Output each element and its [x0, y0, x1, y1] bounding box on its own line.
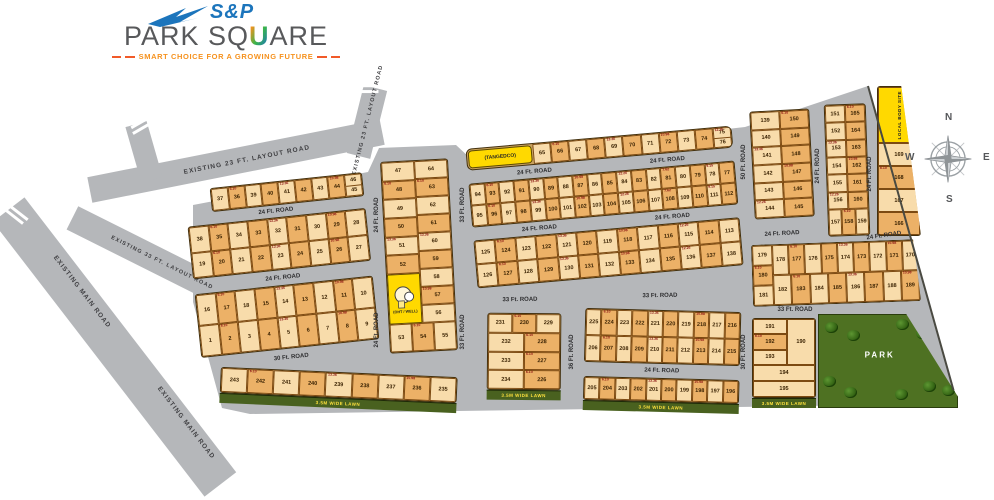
- plot-46-45: 4645: [344, 173, 363, 197]
- plot-33: 33: [247, 219, 269, 246]
- plot-49: 49: [383, 198, 417, 218]
- tagline-dash-icon: [125, 56, 134, 58]
- plot-204: 2046.10: [599, 377, 615, 399]
- plot-227: 2276.10: [524, 352, 560, 371]
- plot-150: 1506.10: [779, 110, 809, 129]
- plot-196: 196: [723, 381, 739, 403]
- plot-184: 184: [810, 273, 829, 304]
- plot-203: 203: [615, 378, 631, 400]
- plot-21: 21: [230, 247, 252, 274]
- layout-map: EXISTING 23 FT. LAYOUT ROAD EXISTING 23 …: [0, 0, 994, 500]
- plot-158: 1586.10: [842, 209, 856, 235]
- plot-153: 15313.36: [826, 140, 847, 158]
- plot-231: 231: [488, 314, 512, 333]
- plot-57: 5710.98: [421, 285, 455, 305]
- plot-237: 237: [377, 375, 404, 400]
- plot-28: 28: [345, 209, 367, 236]
- plot-69: 6913.36: [604, 136, 624, 158]
- plot-160: 160: [848, 191, 869, 209]
- plot-186: 18613.36: [846, 272, 865, 303]
- logo-sp-text: S&P: [210, 2, 340, 22]
- plot-75-76: 757612.26: [712, 127, 732, 149]
- plot-48: 486.10: [382, 180, 416, 200]
- lawn-strip: 3.5M WIDE LAWN: [487, 390, 561, 401]
- plot-10: 10: [352, 277, 375, 310]
- plot-55: 55: [433, 321, 456, 350]
- plot-59: 59: [419, 249, 453, 269]
- plot-121: 12113.36: [556, 233, 578, 258]
- road-label-24ft: 24 Ft. ROAD: [522, 224, 557, 233]
- plot-140: 140: [751, 129, 781, 148]
- lawn-strip: 3.5M WIDE LAWN: [752, 398, 816, 408]
- block-h: 1911926.10193 190 194 195 3.5M WIDE LAWN: [752, 318, 816, 408]
- road-label-33ft: 33 Ft. ROAD: [777, 307, 812, 313]
- plot-156: 15612.26: [828, 192, 849, 210]
- plot-151: 151: [825, 105, 846, 123]
- plot-122: 122: [535, 234, 557, 259]
- plot-243: 243: [221, 368, 248, 393]
- plot-152: 152: [825, 122, 846, 140]
- plot-77: 77: [719, 162, 735, 184]
- plot-216: 216: [724, 313, 740, 339]
- plot-118: 11810.98: [617, 227, 639, 252]
- plot-113: 113: [718, 218, 740, 243]
- compass-east: E: [983, 152, 990, 163]
- plot-72: 7210.98: [658, 131, 678, 153]
- tree-icon: [923, 381, 936, 392]
- plot-116: 116: [657, 224, 679, 249]
- plot-211: 211: [662, 337, 678, 363]
- plot-132: 132: [598, 252, 620, 277]
- plot-159: 159: [855, 208, 869, 234]
- plot-137: 137: [700, 243, 722, 268]
- plot-58: 58: [420, 267, 454, 287]
- plot-225: 225: [586, 309, 602, 335]
- plot-20: 206.10: [211, 249, 233, 276]
- plot-240: 240: [299, 371, 326, 396]
- plot-164: 164: [845, 122, 866, 140]
- road-label-24ft: 24 Ft. ROAD: [655, 212, 690, 221]
- tree-icon: [825, 322, 838, 333]
- plot-202: 202: [630, 378, 646, 400]
- plot-65: 65: [532, 142, 552, 164]
- plot-135: 135: [659, 247, 681, 272]
- plot-56: 56: [422, 303, 456, 323]
- compass-south: S: [946, 194, 953, 205]
- road-label-30ft: 30 Ft. ROAD: [274, 353, 309, 363]
- plot-27: 27: [348, 234, 370, 261]
- plot-209: 209: [631, 336, 647, 362]
- block-c-bottom-big: 2252246.1022322222113.3622021921810.9821…: [583, 308, 742, 414]
- park-label: PARK: [865, 351, 895, 360]
- plot-32: 3213.36: [267, 217, 289, 244]
- tagline-dash-icon: [112, 56, 121, 58]
- road-label-33ft: 33 Ft. ROAD: [502, 297, 537, 304]
- plot-163: 163: [846, 139, 867, 157]
- plot-138: 138: [720, 241, 742, 266]
- plot-201: 20113.36: [646, 379, 662, 401]
- plot-30: 30: [306, 213, 328, 240]
- compass-star-icon: [921, 132, 975, 186]
- plot-223: 223: [616, 310, 632, 336]
- plot-215: 215: [724, 339, 740, 365]
- plot-165: 1656.10: [845, 104, 866, 122]
- plot-222: 222: [632, 310, 648, 336]
- plot-62: 62: [416, 195, 450, 215]
- plot-171: 17110.98: [885, 241, 902, 272]
- plot-71: 71: [640, 133, 660, 155]
- plot-51: 5113.36: [385, 236, 419, 256]
- plot-22: 22: [250, 245, 272, 272]
- plot-185: 185: [828, 273, 847, 304]
- road-label-33ft-vertical: 33 Ft. ROAD: [460, 314, 466, 349]
- lightning-bolt-icon: [146, 4, 212, 28]
- plot-176: 176: [804, 244, 821, 275]
- plot-198: 19810.98: [692, 380, 708, 402]
- block-c-bottom-small: 2312306.10229 2322286.10 2332276.10 2342…: [487, 313, 562, 401]
- plot-70: 70: [622, 135, 642, 157]
- plot-34: 34: [228, 221, 250, 248]
- block-a: 37366.1039404113.3642434410.984645 24 Ft…: [184, 172, 381, 376]
- oht-label: (OHT / WELL): [393, 309, 418, 314]
- plot-235: 235: [429, 377, 456, 402]
- plot-126: 126: [477, 263, 499, 288]
- plot-234: 234: [488, 370, 524, 389]
- plot-123: 123: [515, 236, 537, 261]
- road-label-50ft-vertical: 50 Ft. ROAD: [741, 144, 747, 179]
- plot-174: 17413.36: [837, 242, 854, 273]
- plot-61: 61: [417, 213, 451, 233]
- road-label-24ft: 24 Ft. ROAD: [265, 273, 300, 283]
- plot-213: 21310.98: [693, 338, 709, 364]
- tangedco-site: (TANGEDCO): [468, 145, 533, 169]
- plot-139: 139: [750, 111, 780, 130]
- plot-219: 219: [678, 311, 694, 337]
- plot-127: 1276.10: [497, 261, 519, 286]
- plot-175: 175: [821, 243, 838, 274]
- road-label-24ft-vertical: 24 Ft. ROAD: [815, 148, 821, 183]
- plot-38: 38: [189, 226, 211, 253]
- plot-50: 50: [384, 217, 418, 237]
- plot-221: 22113.36: [647, 311, 663, 337]
- plot-172: 172: [869, 241, 886, 272]
- plot-134: 134: [639, 248, 661, 273]
- road-label-30ft-vertical: 30 Ft. ROAD: [741, 334, 747, 369]
- plot-154: 154: [827, 157, 848, 175]
- compass-rose: N S W E: [905, 112, 991, 208]
- plot-112: 112: [721, 183, 737, 205]
- plot-180: 1806.10: [753, 265, 774, 286]
- road-label-36ft-vertical: 36 Ft. ROAD: [569, 334, 575, 369]
- plot-197: 197: [707, 380, 723, 402]
- plot-142: 142: [753, 164, 783, 183]
- tree-icon: [895, 389, 908, 400]
- plot-183: 1836.10: [791, 274, 810, 305]
- plot-181: 181: [753, 285, 774, 306]
- plot-191: 191: [753, 319, 787, 334]
- plot-74: 74: [694, 128, 714, 150]
- plot-226: 2266.10: [524, 370, 560, 389]
- plot-205: 205: [584, 377, 600, 399]
- plot-131: 131: [578, 254, 600, 279]
- plot-129: 129: [537, 257, 559, 282]
- plot-179: 179: [752, 245, 773, 266]
- road-label-24ft: 24 Ft. ROAD: [517, 167, 552, 176]
- plot-53: 53: [390, 323, 413, 352]
- plot-68: 68: [586, 138, 606, 160]
- plot-233: 233: [488, 351, 524, 370]
- plot-136: 13612.26: [680, 245, 702, 270]
- plot-119: 119: [596, 229, 618, 254]
- plot-117: 117: [637, 225, 659, 250]
- logo-tagline: SMART CHOICE FOR A GROWING FUTURE: [112, 52, 340, 61]
- plot-147: 14710.98: [782, 162, 812, 181]
- plot-23: 2313.36: [270, 243, 292, 270]
- plot-128: 128: [517, 259, 539, 284]
- plot-64: 64: [414, 159, 448, 179]
- plot-67: 67: [568, 139, 588, 161]
- plot-182: 182: [773, 275, 792, 306]
- oht-well-site: (OHT / WELL): [387, 273, 423, 325]
- plot-130: 13013.36: [558, 255, 580, 280]
- block-b: 47486.1049505113.3652 (OHT / WELL) 64636…: [380, 158, 458, 353]
- plot-25: 25: [309, 239, 331, 266]
- plot-52: 52: [386, 254, 420, 274]
- plot-114: 114: [698, 220, 720, 245]
- road-label-24ft-vertical: 24 Ft. ROAD: [374, 197, 380, 232]
- plot-212: 212: [677, 337, 693, 363]
- plot-189: 18910.98: [901, 270, 920, 301]
- plot-241: 241: [273, 370, 300, 395]
- plot-149: 149: [780, 127, 810, 146]
- plot-195: 195: [753, 381, 815, 397]
- plot-35: 356.10: [208, 223, 230, 250]
- plot-161: 161: [847, 174, 868, 192]
- tree-icon: [847, 330, 860, 341]
- plot-125: 125: [475, 240, 497, 265]
- plot-207: 2076.10: [600, 335, 616, 361]
- plot-206: 206: [585, 335, 601, 361]
- plot-120: 120: [576, 231, 598, 256]
- tagline-dash-icon: [317, 56, 326, 58]
- plot-26: 2610.98: [328, 236, 350, 263]
- tree-icon: [844, 387, 857, 398]
- tree-icon: [896, 319, 909, 330]
- plot-187: 187: [864, 271, 883, 302]
- plot-54: 546.10: [412, 322, 435, 351]
- road-label-24ft: 24 Ft. ROAD: [258, 207, 293, 217]
- plot-220: 220: [663, 311, 679, 337]
- plot-178: 178: [772, 245, 789, 276]
- plot-31: 31: [286, 215, 308, 242]
- plot-155: 155: [827, 174, 848, 192]
- plot-29: 2910.98: [326, 211, 348, 238]
- plot-218: 21810.98: [693, 312, 709, 338]
- plot-232: 232: [488, 332, 524, 351]
- block-d: 1391506.1014014914113.3614814214710.9814…: [749, 109, 815, 220]
- brand-logo: S&P PARK SQUARE SMART CHOICE FOR A GROWI…: [112, 2, 340, 61]
- plot-143: 143: [754, 182, 784, 201]
- plot-210: 21013.36: [647, 337, 663, 363]
- plot-47: 47: [381, 161, 415, 181]
- plot-199: 199: [676, 379, 692, 401]
- logo-colored-u: U: [249, 21, 270, 51]
- plot-236: 23610.98: [403, 376, 430, 401]
- plot-217: 217: [709, 312, 725, 338]
- plot-228: 2286.10: [524, 333, 560, 352]
- plot-63: 636.10: [415, 177, 449, 197]
- compass-west: W: [905, 152, 914, 163]
- plot-162: 16210.98: [847, 156, 868, 174]
- block-g: 1791806.10181 1781776.1017617517413.3617…: [751, 239, 921, 307]
- plot-208: 208: [616, 336, 632, 362]
- plot-242: 2426.10: [247, 369, 274, 394]
- plot-192: 1926.10: [753, 334, 787, 349]
- plot-173: 173: [853, 242, 870, 273]
- compass-north: N: [945, 112, 952, 123]
- tagline-dash-icon: [331, 56, 340, 58]
- plot-133: 13310.98: [619, 250, 641, 275]
- plot-188: 188: [882, 271, 901, 302]
- plot-193: 193: [753, 350, 787, 365]
- plot-73: 73: [676, 130, 696, 152]
- plot-190: 190: [787, 319, 815, 365]
- plot-194: 194: [753, 365, 815, 381]
- road-label-24ft-vertical: 24 Ft. ROAD: [867, 156, 873, 191]
- plot-239: 23913.36: [325, 372, 352, 397]
- plot-66: 666.10: [550, 141, 570, 163]
- plot-145: 145: [784, 198, 814, 217]
- plot-177: 1776.10: [788, 244, 805, 275]
- plot-148: 148: [781, 145, 811, 164]
- plot-230: 2306.10: [512, 314, 536, 333]
- oht-tank-icon: [391, 284, 418, 309]
- road-label-33ft: 33 Ft. ROAD: [642, 293, 677, 300]
- plot-141: 14113.36: [752, 146, 782, 165]
- block-e: 1511656.1015216415313.3616315416210.9815…: [824, 103, 871, 236]
- road-label-24ft: 24 Ft. ROAD: [644, 368, 679, 375]
- plot-60: 6013.36: [418, 231, 452, 251]
- tree-icon: [823, 376, 836, 387]
- plot-238: 238: [351, 374, 378, 399]
- plot-229: 229: [536, 314, 560, 333]
- plot-157: 157: [828, 209, 842, 235]
- plot-124: 1246.10: [495, 238, 517, 263]
- road-label-24ft-vertical: 24 Ft. ROAD: [374, 312, 380, 347]
- plot-19: 19: [191, 251, 213, 278]
- plot-115: 11512.26: [678, 222, 700, 247]
- plot-214: 214: [708, 338, 724, 364]
- plot-146: 146: [783, 180, 813, 199]
- road-label-33ft-vertical: 33 Ft. ROAD: [460, 187, 466, 222]
- plot-24: 24: [289, 241, 311, 268]
- plot-200: 200: [661, 379, 677, 401]
- plot-224: 2246.10: [601, 309, 617, 335]
- block-c: (TANGEDCO) 65666.1067686913.3670717210.9…: [465, 126, 743, 289]
- road-label-24ft: 24 Ft. ROAD: [650, 155, 685, 164]
- plot-144: 14412.26: [755, 199, 785, 218]
